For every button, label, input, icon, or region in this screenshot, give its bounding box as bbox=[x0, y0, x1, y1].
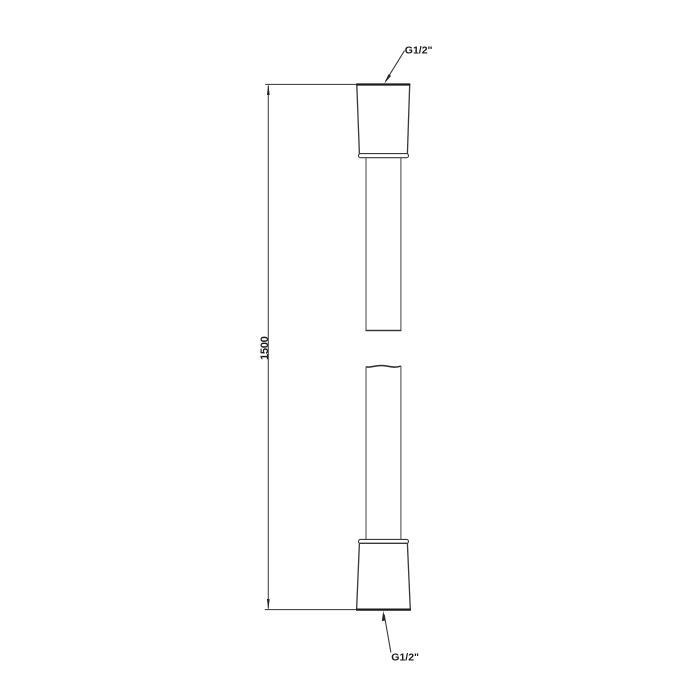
svg-text:1500: 1500 bbox=[259, 336, 271, 360]
svg-text:G1/2": G1/2" bbox=[405, 44, 433, 56]
svg-text:G1/2": G1/2" bbox=[391, 652, 419, 664]
